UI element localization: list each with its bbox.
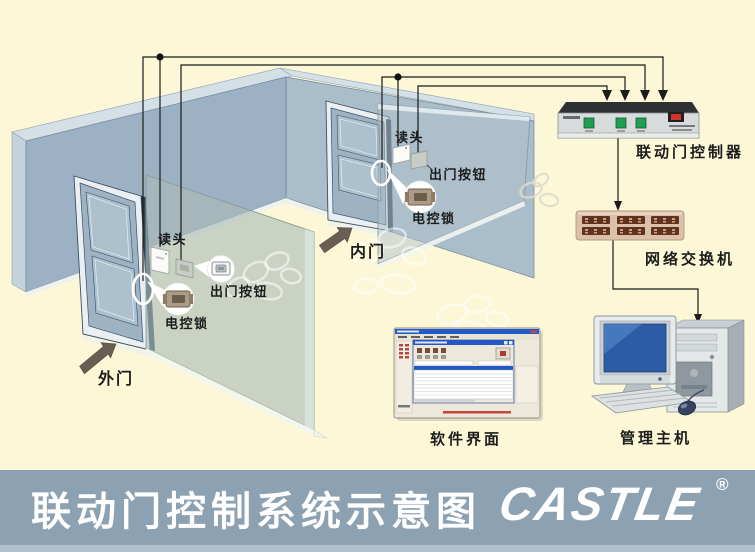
tower-panel-detail-bar [681,385,707,389]
app-scrollbar [415,399,475,402]
app-table-header [414,366,513,370]
controller-top-face [558,102,699,113]
inner-door-label: 内门 [350,238,386,262]
outer-reader-label: 读头 [158,229,187,248]
left-wall-endcap [12,132,26,292]
host-label: 管理主机 [620,427,692,448]
tower-side [728,320,744,412]
controller-button-3 [636,118,646,128]
switch-body [576,211,684,240]
network-switch-device [576,211,684,240]
software-label: 软件界面 [430,428,502,449]
controller-model-microtext [672,129,692,131]
app-left-panel [396,341,412,413]
tower-panel-detail [690,369,698,377]
controller-button-1 [584,118,594,128]
outer-exit-button-label: 出门按钮 [210,281,268,300]
down-arrowhead-icon [620,90,630,101]
switch-label: 网络交换机 [645,248,735,269]
monitor-power-led [658,377,662,381]
outer-door-label: 外门 [98,365,134,389]
center-partition-foot [314,430,327,438]
inner-reader-label: 读头 [395,127,424,146]
controller-model-microtext [669,125,695,127]
center-partition-edge [305,229,314,430]
inner-door-arrow [319,227,352,252]
inner-exit-button-device [411,151,427,169]
footer-bar: 联动门控制系统示意图 CASTLE ® [0,470,755,545]
down-arrowhead-icon [640,90,650,101]
wire-junction-dot [394,73,401,80]
down-arrowhead-icon [602,90,612,101]
outer-card-reader [151,247,169,274]
registered-trademark-icon: ® [716,475,729,495]
wire-junction-dot [156,53,163,60]
schematic-page: 读头 出门按钮 电控锁 读头 出门按钮 电控锁 外门 内门 联动门控制器 网络交… [0,0,755,552]
app-status-redtext [443,411,511,414]
controller-led-red [671,114,681,120]
diagram-title: 联动门控制系统示意图 [31,479,481,537]
controller-brand-microtext [563,116,580,119]
app-side-panel [516,366,538,403]
outer-lock-label: 电控锁 [165,313,209,332]
down-arrowhead-icon [614,201,622,211]
tower-drive-bay [673,344,717,351]
door-controller-device [558,102,699,138]
switch-body-highlight [578,212,682,215]
tower-front-panel [676,362,712,396]
controller-bottom-lip [558,133,699,138]
inner-card-reader [393,144,410,164]
diagram-canvas [0,0,755,470]
inner-lock-label: 电控锁 [412,208,456,227]
footer-bottom-strip [0,545,755,552]
down-arrowhead-icon [658,90,668,101]
brand-logo: CASTLE [495,476,705,531]
tower-power-button [710,355,714,359]
host-computer [592,316,744,417]
tower-drive-bay [673,334,717,341]
controller-label: 联动门控制器 [636,141,744,162]
controller-button-2 [616,118,626,128]
inner-exit-button-label: 出门按钮 [429,164,487,183]
software-window [394,328,543,421]
